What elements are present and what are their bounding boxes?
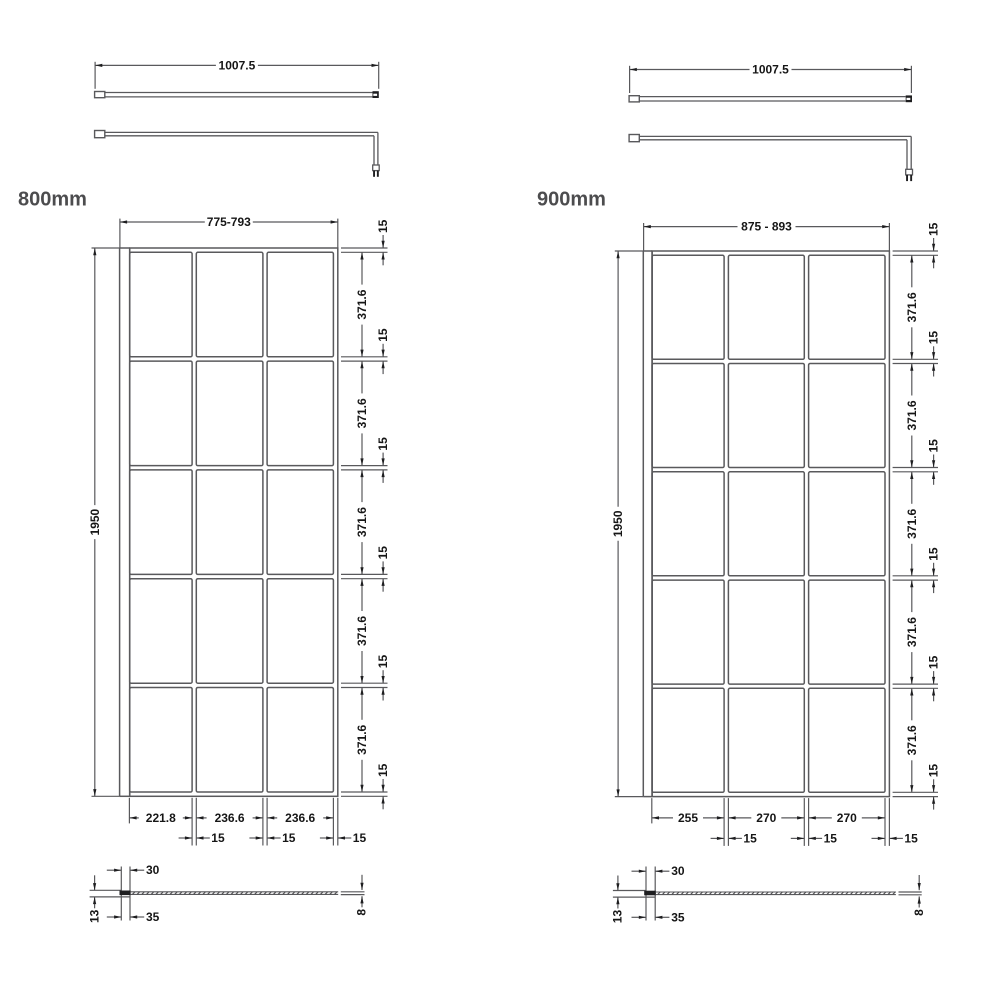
svg-text:15: 15 [927,655,941,669]
svg-text:15: 15 [376,546,390,560]
svg-text:13: 13 [611,910,625,924]
svg-text:15: 15 [376,328,390,342]
svg-text:255: 255 [678,811,698,825]
svg-text:15: 15 [376,437,390,451]
svg-text:371.6: 371.6 [905,617,919,647]
svg-text:15: 15 [376,655,390,669]
svg-text:15: 15 [824,831,838,845]
svg-text:15: 15 [211,831,225,845]
svg-text:371.6: 371.6 [355,289,369,319]
svg-text:236.6: 236.6 [285,811,315,825]
svg-text:15: 15 [927,331,941,345]
svg-text:15: 15 [927,764,941,778]
svg-text:15: 15 [927,547,941,561]
svg-text:15: 15 [282,831,296,845]
svg-text:35: 35 [671,910,685,924]
svg-text:8: 8 [355,909,369,916]
svg-text:775-793: 775-793 [207,215,251,229]
svg-text:371.6: 371.6 [355,398,369,428]
svg-text:371.6: 371.6 [905,508,919,538]
svg-text:15: 15 [353,831,367,845]
svg-text:30: 30 [671,864,685,878]
svg-text:1950: 1950 [88,508,102,535]
svg-text:371.6: 371.6 [905,725,919,755]
svg-text:800mm: 800mm [18,189,87,211]
svg-text:371.6: 371.6 [355,724,369,754]
svg-text:15: 15 [376,219,390,233]
svg-text:1007.5: 1007.5 [219,58,256,72]
svg-text:1950: 1950 [611,510,625,537]
svg-text:371.6: 371.6 [355,507,369,537]
svg-text:15: 15 [743,831,757,845]
svg-text:900mm: 900mm [537,189,606,211]
svg-text:15: 15 [927,439,941,453]
svg-text:270: 270 [756,811,776,825]
svg-text:35: 35 [146,910,160,924]
svg-text:15: 15 [904,831,918,845]
svg-text:371.6: 371.6 [905,292,919,322]
svg-text:30: 30 [146,863,160,877]
svg-text:221.8: 221.8 [146,811,176,825]
svg-text:1007.5: 1007.5 [752,63,789,77]
svg-text:371.6: 371.6 [355,616,369,646]
svg-text:270: 270 [837,811,857,825]
svg-text:8: 8 [912,909,926,916]
svg-text:875 - 893: 875 - 893 [741,220,792,234]
svg-text:371.6: 371.6 [905,400,919,430]
svg-text:236.6: 236.6 [215,811,245,825]
svg-text:15: 15 [376,763,390,777]
svg-text:15: 15 [927,222,941,236]
svg-text:13: 13 [87,909,101,923]
